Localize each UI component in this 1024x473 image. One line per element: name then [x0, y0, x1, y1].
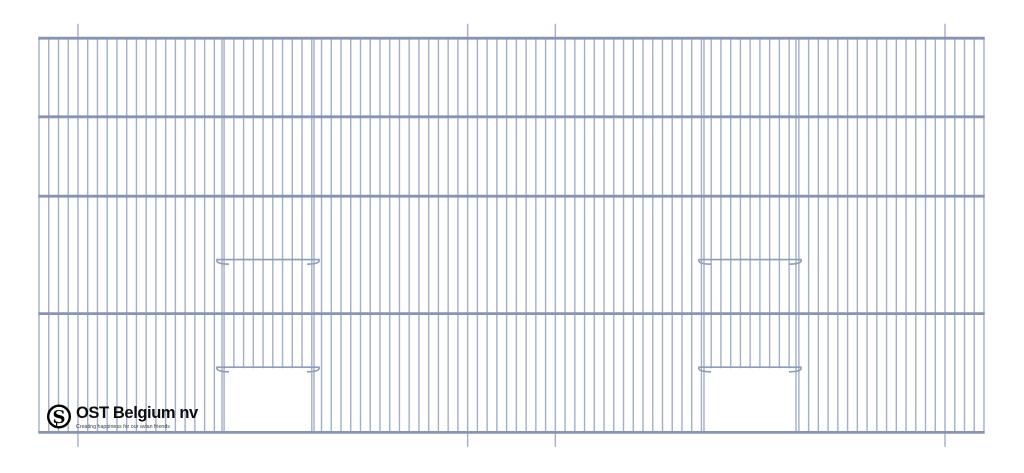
emblem-monogram-small: J [54, 421, 58, 429]
brand-emblem-icon: S J [45, 402, 73, 432]
left-door-upper-rail [217, 260, 319, 265]
brand-logo: S J OST Belgium nv Creating happiness fo… [45, 402, 198, 432]
cage-front-drawing: S J OST Belgium nv Creating happiness fo… [0, 0, 1024, 473]
brand-tagline: Creating happiness for our avian friends [76, 424, 198, 430]
left-door-lower-rail [217, 367, 319, 372]
brand-name: OST Belgium nv [76, 405, 198, 422]
right-door-lower-rail [699, 367, 801, 372]
brand-text-block: OST Belgium nv Creating happiness for ou… [76, 405, 198, 430]
